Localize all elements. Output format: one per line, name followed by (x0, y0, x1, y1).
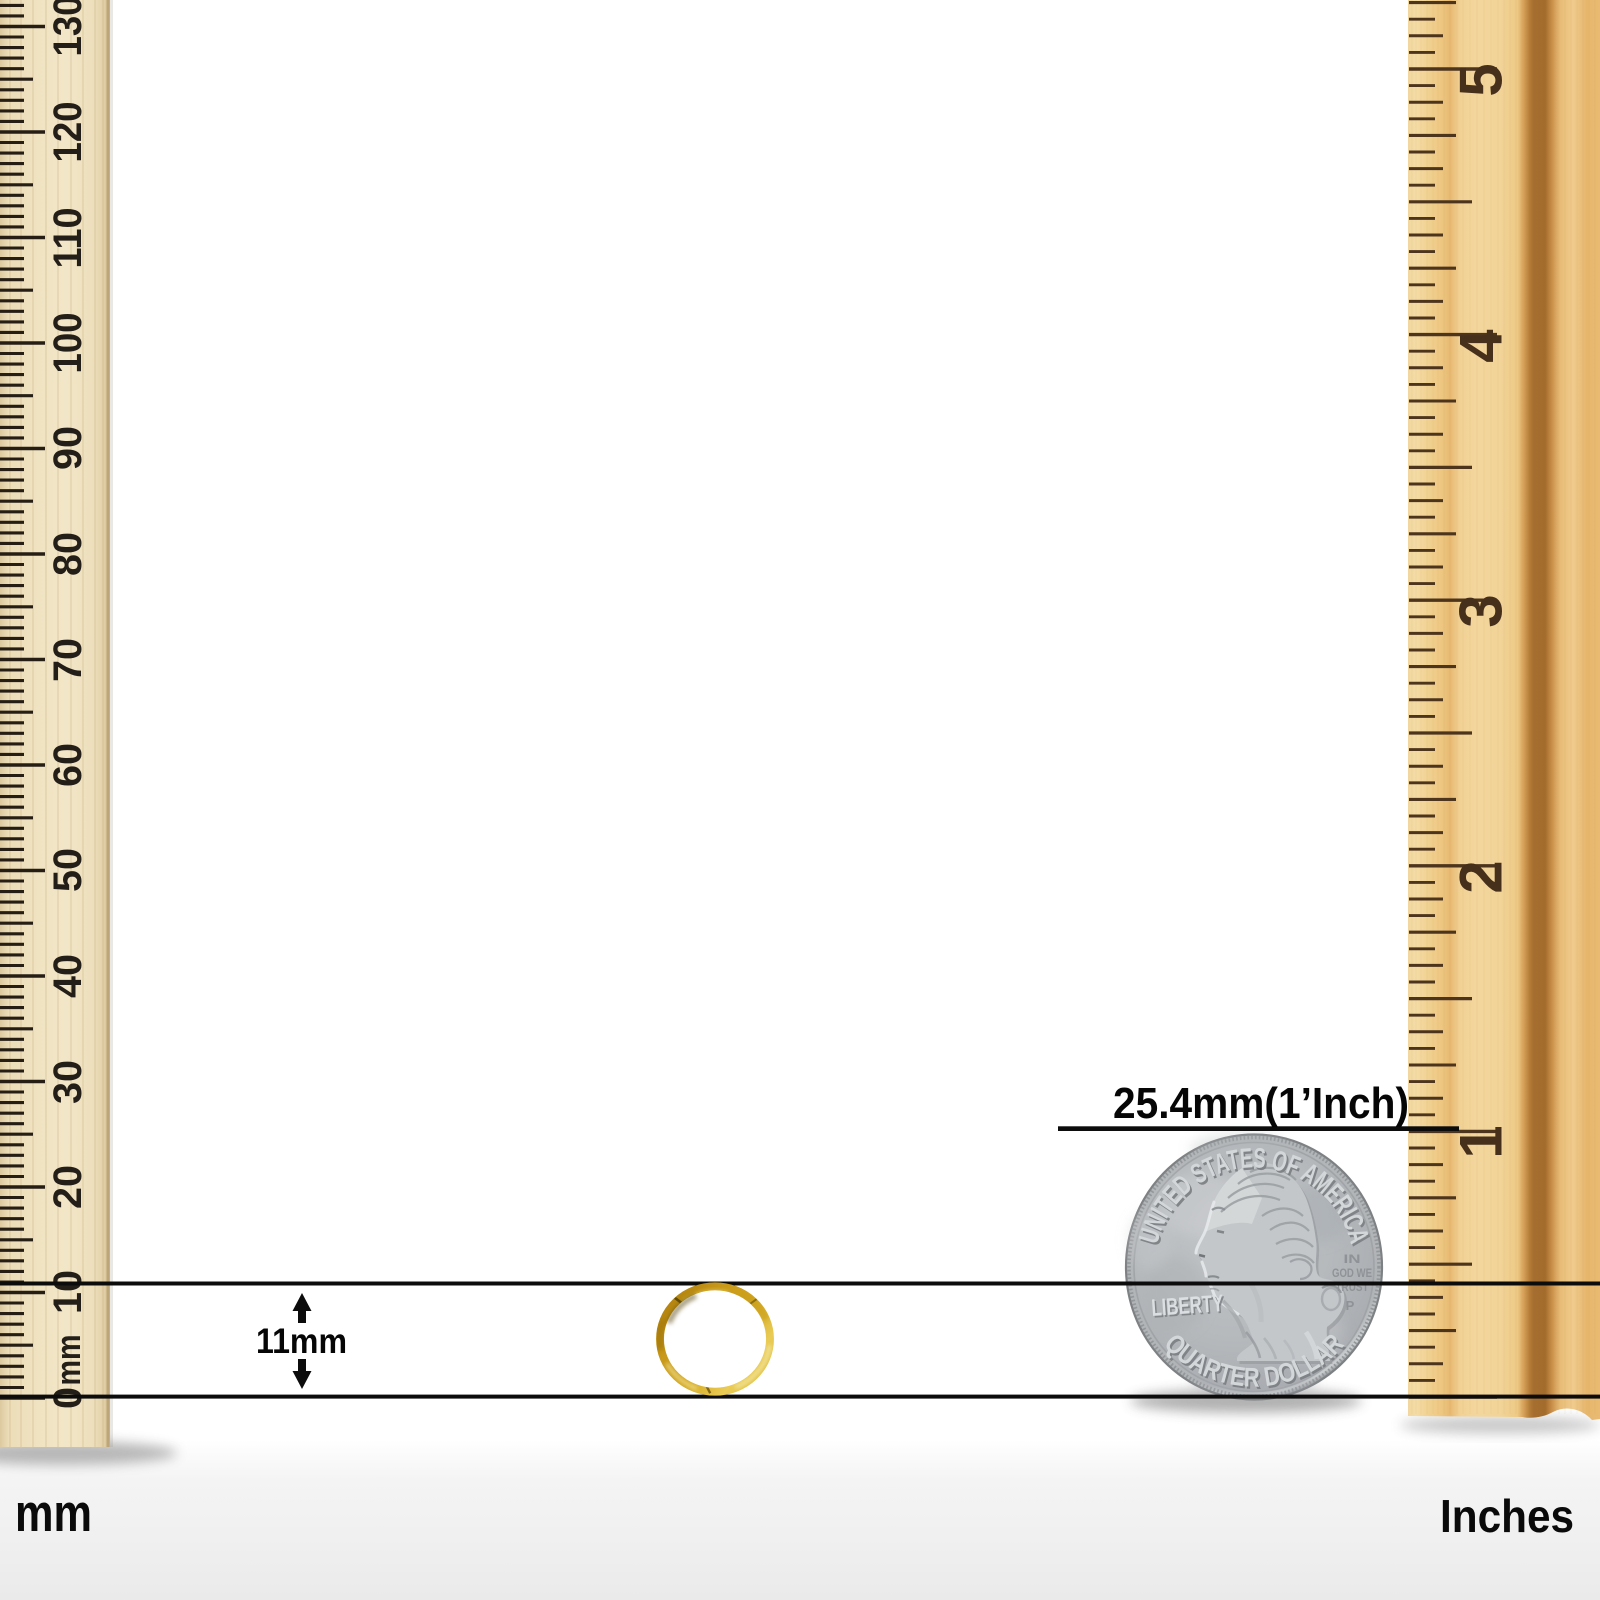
svg-text:70: 70 (46, 638, 90, 682)
svg-text:mm: mm (50, 1335, 88, 1386)
svg-text:40: 40 (46, 954, 90, 998)
svg-text:Inches: Inches (1440, 1490, 1574, 1542)
svg-text:10: 10 (46, 1270, 90, 1314)
svg-text:mm: mm (15, 1484, 92, 1543)
svg-text:3: 3 (1448, 594, 1515, 627)
svg-text:5: 5 (1448, 63, 1515, 96)
svg-text:30: 30 (46, 1060, 90, 1104)
svg-text:80: 80 (46, 532, 90, 576)
svg-text:20: 20 (46, 1165, 90, 1209)
svg-text:4: 4 (1448, 329, 1515, 363)
svg-text:90: 90 (46, 426, 90, 470)
svg-text:P: P (1346, 1298, 1355, 1313)
svg-text:100: 100 (46, 313, 90, 374)
svg-text:110: 110 (46, 208, 90, 269)
svg-text:120: 120 (46, 102, 90, 163)
svg-text:2: 2 (1448, 860, 1515, 893)
svg-text:50: 50 (46, 848, 90, 892)
svg-text:GOD WE: GOD WE (1332, 1268, 1372, 1280)
svg-text:LIBERTY: LIBERTY (1151, 1290, 1225, 1322)
svg-text:60: 60 (46, 743, 90, 787)
svg-text:130: 130 (46, 0, 90, 57)
svg-text:IN: IN (1344, 1254, 1361, 1266)
svg-text:11mm: 11mm (256, 1322, 347, 1361)
svg-text:25.4mm(1’Inch): 25.4mm(1’Inch) (1113, 1079, 1409, 1128)
